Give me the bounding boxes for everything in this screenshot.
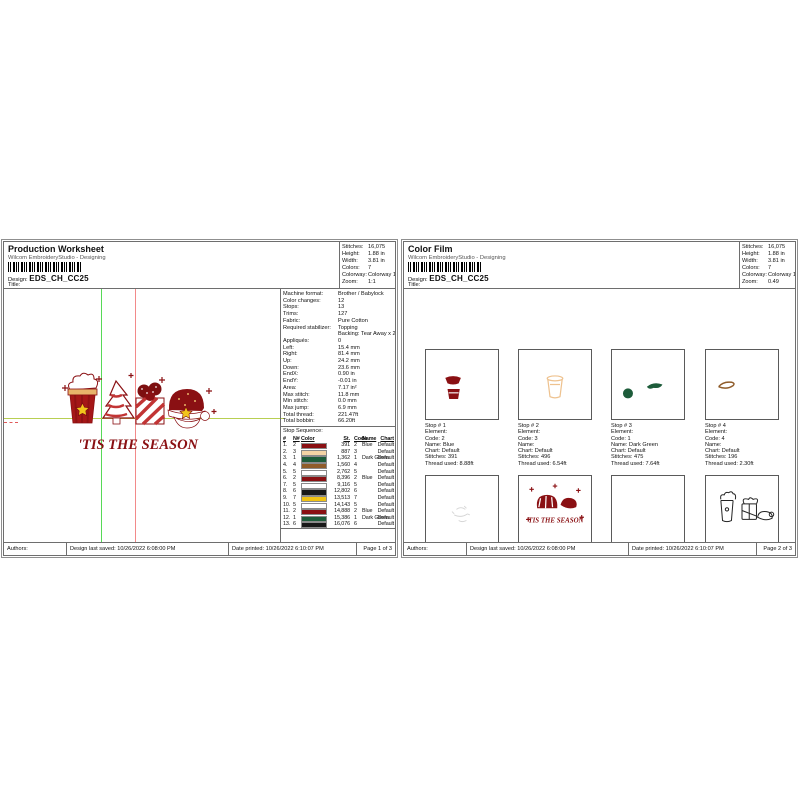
film-cell-stop-7: Stop # 7Element:Code: 5Name:Chart: Defau…: [611, 475, 685, 542]
stop-8-art: [706, 476, 778, 542]
title-label: Title:: [8, 282, 20, 288]
stop-caption: Stop # 4Element:Code: 4Name:Chart: Defau…: [705, 423, 779, 467]
design-name: EDS_CH_CC25: [429, 274, 489, 283]
page-frame: Color Film Wilcom EmbroideryStudio - Des…: [403, 241, 796, 556]
detail-label: Max jump:: [283, 405, 338, 412]
stop-number: 2.: [283, 449, 287, 455]
stat-value: 1.88 in: [368, 251, 395, 258]
stat-value: 3.81 in: [768, 258, 795, 265]
present-art: [136, 383, 164, 425]
thread-name: Blue: [362, 508, 372, 514]
stat-label: Colorway:: [342, 272, 368, 279]
detail-value: Brother / Babylock: [338, 291, 395, 298]
film-header: Color Film Wilcom EmbroideryStudio - Des…: [404, 242, 795, 289]
footer-divider: [228, 543, 229, 555]
stop-number: 3.: [283, 455, 287, 461]
print-preview: Production Worksheet Wilcom EmbroiderySt…: [0, 0, 800, 800]
stop-table-row: 3.11,3621Dark GreenDefault: [281, 455, 395, 462]
stop-thumbnail: [518, 349, 592, 420]
detail-row: Machine format:Brother / Babylock: [281, 291, 395, 298]
film-cell-stop-3: Stop # 3Element:Code: 1Name: Dark GreenC…: [611, 349, 685, 467]
thread-name: Blue: [362, 475, 372, 481]
chart-name: Default: [378, 508, 394, 514]
col-header: N#: [293, 436, 300, 442]
detail-row: Up:24.2 mm: [281, 358, 395, 365]
stop-number: 9.: [283, 495, 287, 501]
stat-value: 7: [368, 265, 395, 272]
stop-number: 1.: [283, 442, 287, 448]
detail-label: EndX:: [283, 371, 338, 378]
stat-label: Stitches:: [342, 244, 368, 251]
detail-row: Total bobbin:66.20ft: [281, 418, 395, 425]
detail-row: Left:15.4 mm: [281, 345, 395, 352]
stop-table-row: 11.214,8882BlueDefault: [281, 508, 395, 515]
stitch-count: 887: [325, 449, 350, 455]
needle-number: 4: [293, 462, 296, 468]
stop-sequence-table: #N#ColorSt.CodeNameChart1.23912BlueDefau…: [281, 436, 395, 528]
stat-value: 7: [768, 265, 795, 272]
stitch-count: 8,396: [325, 475, 350, 481]
detail-row: Max stitch:11.8 mm: [281, 392, 395, 399]
stat-row: Colorway:Colorway 1: [342, 272, 395, 279]
page-frame: Production Worksheet Wilcom EmbroiderySt…: [3, 241, 396, 556]
stat-row: Colorway:Colorway 1: [742, 272, 795, 279]
stop-number: 10.: [283, 502, 290, 508]
stat-value: Colorway 1: [368, 272, 395, 279]
stat-label: Zoom:: [742, 279, 768, 286]
needle-number: 7: [293, 495, 296, 501]
stop-caption: Stop # 3Element:Code: 1Name: Dark GreenC…: [611, 423, 685, 467]
needle-number: 1: [293, 515, 296, 521]
authors-label: Authors:: [7, 546, 28, 552]
detail-label: Required stabilizer:: [283, 325, 338, 332]
stop-table-row: 6.28,3962BlueDefault: [281, 475, 395, 482]
detail-row: Fabric:Pure Cotton: [281, 318, 395, 325]
thread-code: 3: [354, 449, 357, 455]
barcode: [408, 262, 482, 272]
worksheet-header: Production Worksheet Wilcom EmbroiderySt…: [4, 242, 395, 289]
app-name: Wilcom EmbroideryStudio - Designing: [8, 255, 106, 261]
film-cell-stop-6: 'TIS THE SEASON Stop # 6Element:Code: 2N…: [518, 475, 592, 542]
app-name: Wilcom EmbroideryStudio - Designing: [408, 255, 506, 261]
title-label: Title:: [408, 282, 420, 288]
authors-label: Authors:: [407, 546, 428, 552]
film-cell-stop-4: Stop # 4Element:Code: 4Name:Chart: Defau…: [705, 349, 779, 467]
detail-value: Backing: Tear Away x 2: [338, 331, 395, 338]
barcode: [8, 262, 82, 272]
footer-divider: [66, 543, 67, 555]
detail-row: Area:7.17 in²: [281, 385, 395, 392]
details-panel: Machine format:Brother / BabylockColor c…: [280, 289, 395, 542]
detail-label: Color changes:: [283, 298, 338, 305]
stat-row: Height:1.88 in: [342, 251, 395, 258]
stat-label: Zoom:: [342, 279, 368, 286]
caption-line: Thread used: 7.64ft: [611, 461, 685, 467]
stat-value: 16,075: [368, 244, 395, 251]
stat-label: Colorway:: [742, 272, 768, 279]
detail-label: Fabric:: [283, 318, 338, 325]
production-worksheet-page: Production Worksheet Wilcom EmbroiderySt…: [1, 239, 398, 558]
film-body: Stop # 1Element:Code: 2Name: BlueChart: …: [404, 289, 795, 542]
needle-number: 1: [293, 455, 296, 461]
stop-caption: Stop # 1Element:Code: 2Name: BlueChart: …: [425, 423, 499, 467]
needle-number: 6: [293, 521, 296, 527]
stat-label: Stitches:: [742, 244, 768, 251]
chart-name: Default: [378, 449, 394, 455]
detail-label: Appliqués:: [283, 338, 338, 345]
stop-number: 5.: [283, 469, 287, 475]
detail-value: Pure Cotton: [338, 318, 395, 325]
needle-number: 5: [293, 502, 296, 508]
needle-number: 5: [293, 482, 296, 488]
stop-thumbnail: [705, 349, 779, 420]
col-header: Name: [362, 436, 376, 442]
col-header: St.: [325, 436, 350, 442]
design-last-saved: Design last saved: 10/26/2022 6:08:00 PM: [70, 546, 175, 552]
stop-sequence-section: Stop Sequence: #N#ColorSt.CodeNameChart1…: [281, 426, 395, 529]
stat-row: Stitches:16,075: [742, 244, 795, 251]
chart-name: Default: [378, 482, 394, 488]
stat-row: Width:3.81 in: [342, 258, 395, 265]
thread-color-swatch: [301, 522, 327, 528]
detail-value: -0.01 in: [338, 378, 395, 385]
footer-divider: [756, 543, 757, 555]
stop-thumbnail: [611, 349, 685, 420]
detail-label: Area:: [283, 385, 338, 392]
stop-thumbnail: 'TIS THE SEASON: [518, 475, 592, 542]
color-film-page: Color Film Wilcom EmbroideryStudio - Des…: [401, 239, 798, 558]
detail-label: Total thread:: [283, 412, 338, 419]
detail-row: Stops:13: [281, 304, 395, 311]
thread-code: 6: [354, 488, 357, 494]
thread-code: 6: [354, 521, 357, 527]
detail-label: Total bobbin:: [283, 418, 338, 425]
stop-6-art: 'TIS THE SEASON: [519, 476, 591, 542]
stat-value: 1.88 in: [768, 251, 795, 258]
worksheet-body: 'TIS THE SEASON Machine format:Brother /…: [4, 289, 395, 542]
stat-row: Zoom:0.49: [742, 279, 795, 286]
detail-label: Up:: [283, 358, 338, 365]
stop-table-row: 9.713,5137Default: [281, 495, 395, 502]
film-cell-stop-5: Stop # 5Element:Code: 5Name:Chart: Defau…: [425, 475, 499, 542]
col-header: Color: [301, 436, 315, 442]
stop-thumbnail: [611, 475, 685, 542]
chart-name: Default: [378, 455, 394, 461]
worksheet-footer: Authors: Design last saved: 10/26/2022 6…: [4, 542, 395, 555]
stat-label: Width:: [342, 258, 368, 265]
caption-line: Thread used: 6.54ft: [518, 461, 592, 467]
footer-divider: [628, 543, 629, 555]
detail-value: 221.47ft: [338, 412, 395, 419]
film-footer: Authors: Design last saved: 10/26/2022 6…: [404, 542, 795, 555]
chart-name: Default: [378, 495, 394, 501]
stat-label: Colors:: [342, 265, 368, 272]
thread-code: 2: [354, 475, 357, 481]
detail-label: Min stitch:: [283, 398, 338, 405]
stitch-count: 2,762: [325, 469, 350, 475]
latte-cup-art: [68, 373, 98, 423]
needle-number: 2: [293, 475, 296, 481]
thread-code: 2: [354, 508, 357, 514]
detail-value: 12: [338, 298, 395, 305]
stitch-count: 12,802: [325, 488, 350, 494]
needle-number: 6: [293, 488, 296, 494]
needle-number: 3: [293, 449, 296, 455]
stop-number: 12.: [283, 515, 290, 521]
detail-row: Trims:127: [281, 311, 395, 318]
detail-value: 81.4 mm: [338, 351, 395, 358]
page-number: Page 2 of 3: [763, 546, 792, 552]
detail-row: Total thread:221.47ft: [281, 412, 395, 419]
mini-tagline: 'TIS THE SEASON: [526, 518, 584, 525]
stop-table-row: 1.23912BlueDefault: [281, 442, 395, 449]
santa-hat-art: [168, 389, 210, 428]
detail-row: Backing: Tear Away x 2: [281, 331, 395, 338]
design-details: Machine format:Brother / BabylockColor c…: [281, 289, 395, 425]
origin-marker: [4, 422, 18, 423]
detail-row: Right:81.4 mm: [281, 351, 395, 358]
film-cell-stop-8: Stop # 8Element:Code: 6Name:Chart: Defau…: [705, 475, 779, 542]
detail-value: Topping: [338, 325, 395, 332]
stat-value: 0.49: [768, 279, 795, 286]
stitch-count: 14,888: [325, 508, 350, 514]
detail-value: 7.17 in²: [338, 385, 395, 392]
stat-label: Height:: [742, 251, 768, 258]
stitch-count: 1,362: [325, 455, 350, 461]
footer-divider: [356, 543, 357, 555]
film-cell-stop-2: Stop # 2Element:Code: 3Name:Chart: Defau…: [518, 349, 592, 467]
detail-row: Down:23.6 mm: [281, 365, 395, 372]
page-number: Page 1 of 3: [363, 546, 392, 552]
detail-value: 13: [338, 304, 395, 311]
detail-label: Stops:: [283, 304, 338, 311]
stop-number: 4.: [283, 462, 287, 468]
detail-value: 15.4 mm: [338, 345, 395, 352]
detail-label: Max stitch:: [283, 392, 338, 399]
needle-number: 2: [293, 508, 296, 514]
detail-value: 66.20ft: [338, 418, 395, 425]
stitch-count: 14,143: [325, 502, 350, 508]
thread-code: 4: [354, 462, 357, 468]
table-end-rule: [281, 528, 395, 529]
caption-line: Thread used: 8.88ft: [425, 461, 499, 467]
stop-2-art: [519, 350, 591, 419]
stop-thumbnail: [425, 349, 499, 420]
detail-label: Down:: [283, 365, 338, 372]
detail-value: 6.9 mm: [338, 405, 395, 412]
detail-row: Appliqués:0: [281, 338, 395, 345]
caption-line: Thread used: 2.30ft: [705, 461, 779, 467]
date-printed: Date printed: 10/26/2022 6:10:07 PM: [232, 546, 324, 552]
stat-value: 3.81 in: [368, 258, 395, 265]
stitch-count: 391: [325, 442, 350, 448]
chart-name: Default: [378, 521, 394, 527]
stitch-count: 16,076: [325, 521, 350, 527]
stop-table-row: 2.38873Default: [281, 449, 395, 456]
chart-name: Default: [378, 442, 394, 448]
detail-value: 11.8 mm: [338, 392, 395, 399]
design-stats: Stitches:16,075Height:1.88 inWidth:3.81 …: [739, 242, 795, 288]
stat-row: Colors:7: [742, 265, 795, 272]
stop-thumbnail: [705, 475, 779, 542]
detail-value: 0.90 in: [338, 371, 395, 378]
design-artwork: 'TIS THE SEASON: [57, 369, 219, 453]
chart-name: Default: [378, 488, 394, 494]
stop-5-art: [426, 476, 498, 542]
stitch-count: 15,386: [325, 515, 350, 521]
detail-row: Color changes:12: [281, 298, 395, 305]
stop-4-art: [706, 350, 778, 419]
detail-row: EndY:-0.01 in: [281, 378, 395, 385]
stat-value: Colorway 1: [768, 272, 795, 279]
detail-value: 24.2 mm: [338, 358, 395, 365]
chart-name: Default: [378, 475, 394, 481]
chart-name: Default: [378, 469, 394, 475]
page-title: Production Worksheet: [8, 244, 104, 254]
detail-label: Machine format:: [283, 291, 338, 298]
thread-code: 5: [354, 502, 357, 508]
stop-table-row: 13.616,0766Default: [281, 521, 395, 528]
stop-table-header: #N#ColorSt.CodeNameChart: [281, 436, 395, 443]
stitch-count: 9,116: [325, 482, 350, 488]
stitch-count: 1,560: [325, 462, 350, 468]
stop-number: 7.: [283, 482, 287, 488]
stop-3-art: [612, 350, 684, 419]
needle-number: 2: [293, 442, 296, 448]
design-last-saved: Design last saved: 10/26/2022 6:08:00 PM: [470, 546, 575, 552]
needle-number: 5: [293, 469, 296, 475]
stop-table-row: 10.514,1435Default: [281, 502, 395, 509]
date-printed: Date printed: 10/26/2022 6:10:07 PM: [632, 546, 724, 552]
detail-label: [283, 331, 338, 338]
page-title: Color Film: [408, 244, 453, 254]
col-header: #: [283, 436, 286, 442]
chart-name: Default: [378, 462, 394, 468]
stop-number: 13.: [283, 521, 290, 527]
stop-number: 11.: [283, 508, 290, 514]
detail-row: Min stitch:0.0 mm: [281, 398, 395, 405]
col-header: Chart: [380, 436, 394, 442]
detail-label: Trims:: [283, 311, 338, 318]
detail-row: Required stabilizer:Topping: [281, 325, 395, 332]
thread-code: 7: [354, 495, 357, 501]
stop-thumbnail: [425, 475, 499, 542]
stop-table-row: 7.59,1165Default: [281, 482, 395, 489]
chart-name: Default: [378, 515, 394, 521]
thread-code: 5: [354, 482, 357, 488]
detail-row: Max jump:6.9 mm: [281, 405, 395, 412]
stop-number: 6.: [283, 475, 287, 481]
detail-label: EndY:: [283, 378, 338, 385]
detail-label: Right:: [283, 351, 338, 358]
detail-value: 0: [338, 338, 395, 345]
stat-row: Colors:7: [342, 265, 395, 272]
stop-table-row: 5.52,7625Default: [281, 469, 395, 476]
thread-name: Blue: [362, 442, 372, 448]
stitch-count: 13,513: [325, 495, 350, 501]
stop-caption: Stop # 2Element:Code: 3Name:Chart: Defau…: [518, 423, 592, 467]
chart-name: Default: [378, 502, 394, 508]
stat-value: 1:1: [368, 279, 395, 286]
design-stats: Stitches:16,075Height:1.88 inWidth:3.81 …: [339, 242, 395, 288]
film-cell-stop-1: Stop # 1Element:Code: 2Name: BlueChart: …: [425, 349, 499, 467]
stat-label: Colors:: [742, 265, 768, 272]
tree-cake-art: [103, 381, 134, 424]
stop-1-art: [426, 350, 498, 419]
thread-code: 1: [354, 515, 357, 521]
stat-value: 16,075: [768, 244, 795, 251]
thread-code: 2: [354, 442, 357, 448]
detail-value: 23.6 mm: [338, 365, 395, 372]
detail-row: EndX:0.90 in: [281, 371, 395, 378]
thread-code: 1: [354, 455, 357, 461]
stop-table-row: 12.115,3861Dark GreenDefault: [281, 515, 395, 522]
detail-value: 127: [338, 311, 395, 318]
stat-row: Height:1.88 in: [742, 251, 795, 258]
stop-sequence-label: Stop Sequence:: [281, 427, 395, 436]
thread-code: 5: [354, 469, 357, 475]
stop-table-row: 8.612,8026Default: [281, 488, 395, 495]
stat-row: Stitches:16,075: [342, 244, 395, 251]
detail-label: Left:: [283, 345, 338, 352]
stat-row: Width:3.81 in: [742, 258, 795, 265]
stat-label: Width:: [742, 258, 768, 265]
stat-row: Zoom:1:1: [342, 279, 395, 286]
design-tagline: 'TIS THE SEASON: [78, 437, 199, 453]
design-name: EDS_CH_CC25: [29, 274, 89, 283]
footer-divider: [466, 543, 467, 555]
stop-table-row: 4.41,5604Default: [281, 462, 395, 469]
stop-number: 8.: [283, 488, 287, 494]
stat-label: Height:: [342, 251, 368, 258]
detail-value: 0.0 mm: [338, 398, 395, 405]
